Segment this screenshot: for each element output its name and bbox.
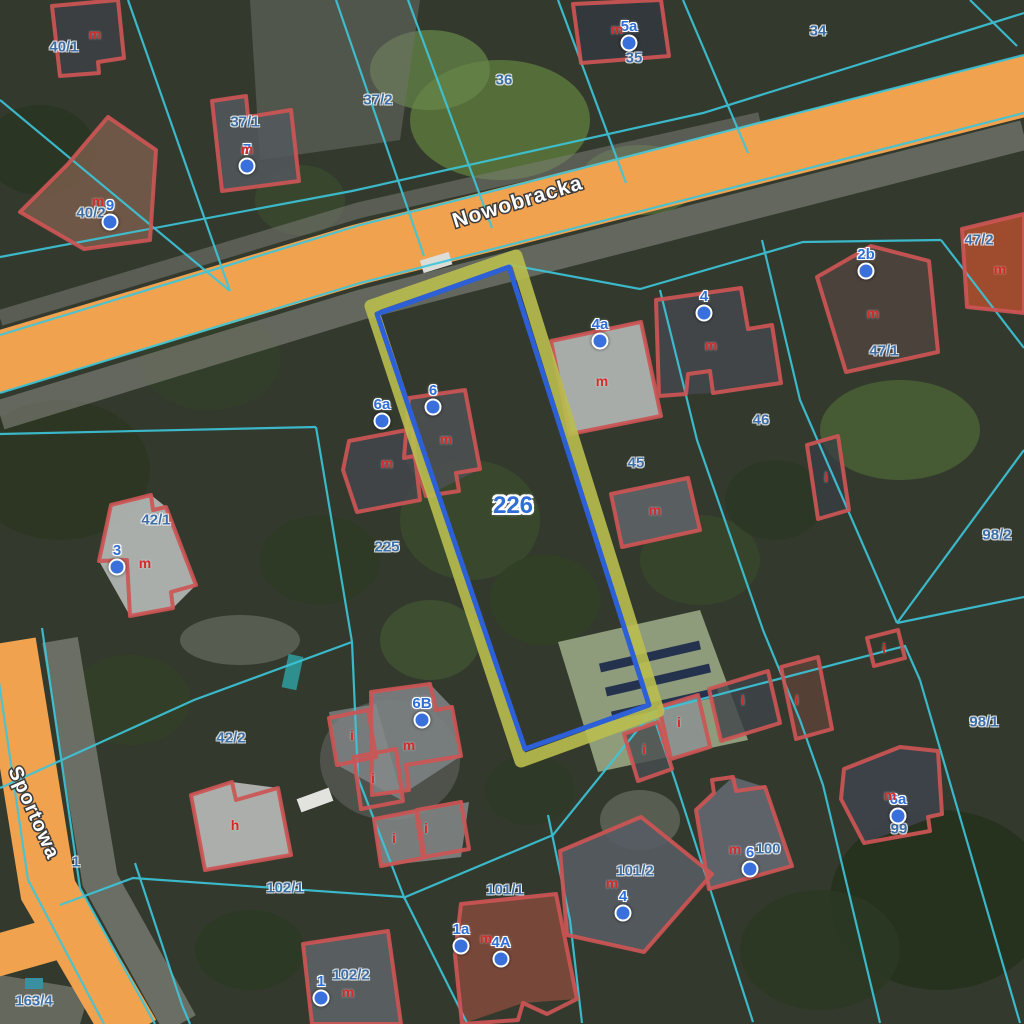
building-function-letter-m: m xyxy=(606,875,618,891)
building-function-letter-m: m xyxy=(867,305,879,321)
building-function-letter-m: m xyxy=(403,737,415,753)
address-number: 6B xyxy=(412,695,431,712)
building-function-letter-m: m xyxy=(611,21,623,37)
parcel-label-40-1: 40/1 xyxy=(49,39,78,56)
parcel-label-46: 46 xyxy=(753,412,770,429)
parcel-label-37-1: 37/1 xyxy=(230,114,259,131)
address-number: 6a xyxy=(374,396,391,413)
building-function-letter-i: i xyxy=(424,820,428,836)
address-number: 4 xyxy=(700,288,708,305)
address-dot-icon xyxy=(313,990,330,1007)
address-dot-icon xyxy=(592,333,609,350)
building-function-letter-i: i xyxy=(824,469,828,485)
building-function-letter-m: m xyxy=(884,787,896,803)
parcel-label-226: 226 xyxy=(493,492,533,520)
address-dot-icon xyxy=(425,399,442,416)
parcel-label-163-4: 163/4 xyxy=(15,993,53,1010)
address-number: 6 xyxy=(429,382,437,399)
building-function-letter-i: i xyxy=(741,692,745,708)
building-function-letter-m: m xyxy=(381,455,393,471)
parcel-label-36: 36 xyxy=(496,72,513,89)
address-dot-icon xyxy=(239,158,256,175)
parcel-label-100: 100 xyxy=(755,841,780,858)
address-dot-icon xyxy=(858,263,875,280)
parcel-label-42-1: 42/1 xyxy=(141,512,170,529)
building-function-letter-m: m xyxy=(440,431,452,447)
address-dot-icon xyxy=(696,305,713,322)
building-function-letter-m: m xyxy=(480,930,492,946)
address-dot-icon xyxy=(374,413,391,430)
parcel-label-102-2: 102/2 xyxy=(332,967,370,984)
parcel-label-101-2: 101/2 xyxy=(616,863,654,880)
parcel-label-102-1: 102/1 xyxy=(266,880,304,897)
address-number: 3 xyxy=(113,542,121,559)
address-dot-icon xyxy=(890,808,907,825)
building-function-letter-m: m xyxy=(89,26,101,42)
parcel-label-98-1: 98/1 xyxy=(969,714,998,731)
building-function-letter-m: m xyxy=(596,373,608,389)
address-number: 9 xyxy=(106,197,114,214)
building-function-letter-i: i xyxy=(677,714,681,730)
building-function-letter-m: m xyxy=(729,841,741,857)
cadastral-map-viewport[interactable]: Nowobracka Sportowa 40/137/137/236353440… xyxy=(0,0,1024,1024)
building-function-letter-m: m xyxy=(92,193,104,209)
building-function-letter-i: i xyxy=(795,692,799,708)
parcel-label-37-2: 37/2 xyxy=(363,92,392,109)
building-function-letter-i: i xyxy=(642,741,646,757)
address-dot-icon xyxy=(453,938,470,955)
address-number: 1 xyxy=(317,973,325,990)
parcel-label-42-2: 42/2 xyxy=(216,730,245,747)
address-number: 4 xyxy=(619,888,627,905)
address-dot-icon xyxy=(742,861,759,878)
address-dot-icon xyxy=(414,712,431,729)
map-labels-layer: 40/137/137/236353440/247/247/1464542/122… xyxy=(0,0,1024,1024)
building-function-letter-i: i xyxy=(882,640,886,656)
parcel-label-101-1: 101/1 xyxy=(486,882,524,899)
building-function-letter-i: i xyxy=(392,830,396,846)
building-function-letter-m: m xyxy=(139,555,151,571)
address-number: 4a xyxy=(592,316,609,333)
address-number: 6 xyxy=(746,844,754,861)
address-number: 1a xyxy=(453,921,470,938)
parcel-label-47-2: 47/2 xyxy=(964,232,993,249)
address-number: 4A xyxy=(491,934,510,951)
parcel-label-1: 1 xyxy=(72,854,80,871)
address-number: 2b xyxy=(857,246,875,263)
address-dot-icon xyxy=(621,35,638,52)
parcel-label-98-2: 98/2 xyxy=(982,527,1011,544)
building-function-letter-m: m xyxy=(649,502,661,518)
address-dot-icon xyxy=(109,559,126,576)
building-function-letter-m: m xyxy=(994,261,1006,277)
address-dot-icon xyxy=(615,905,632,922)
building-function-letter-m: m xyxy=(705,337,717,353)
parcel-label-35: 35 xyxy=(626,50,643,67)
building-function-letter-h: h xyxy=(231,817,240,833)
building-function-letter-m: m xyxy=(342,984,354,1000)
address-dot-icon xyxy=(493,951,510,968)
parcel-label-34: 34 xyxy=(810,23,827,40)
parcel-label-45: 45 xyxy=(628,455,645,472)
building-function-letter-i: i xyxy=(371,770,375,786)
building-function-letter-i: i xyxy=(350,727,354,743)
address-dot-icon xyxy=(102,214,119,231)
parcel-label-47-1: 47/1 xyxy=(869,343,898,360)
building-function-letter-m: m xyxy=(241,141,253,157)
parcel-label-225: 225 xyxy=(374,539,399,556)
